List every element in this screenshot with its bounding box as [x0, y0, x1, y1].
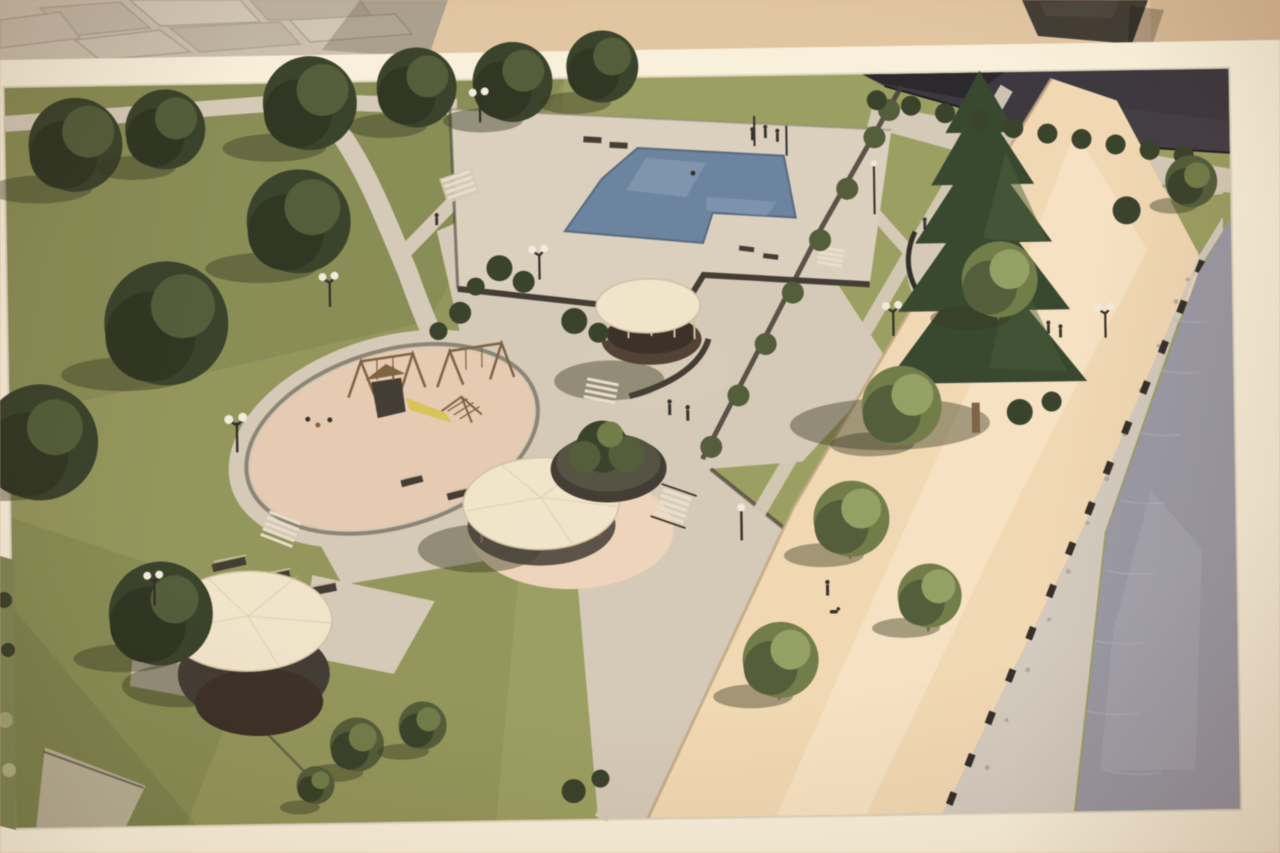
gazebo-central-roof	[596, 278, 701, 334]
scene-svg	[0, 0, 1280, 853]
photograph-of-printed-rendering	[0, 0, 1280, 853]
adjacent-photo-sliver	[0, 556, 16, 830]
park-rendering	[0, 21, 1240, 829]
